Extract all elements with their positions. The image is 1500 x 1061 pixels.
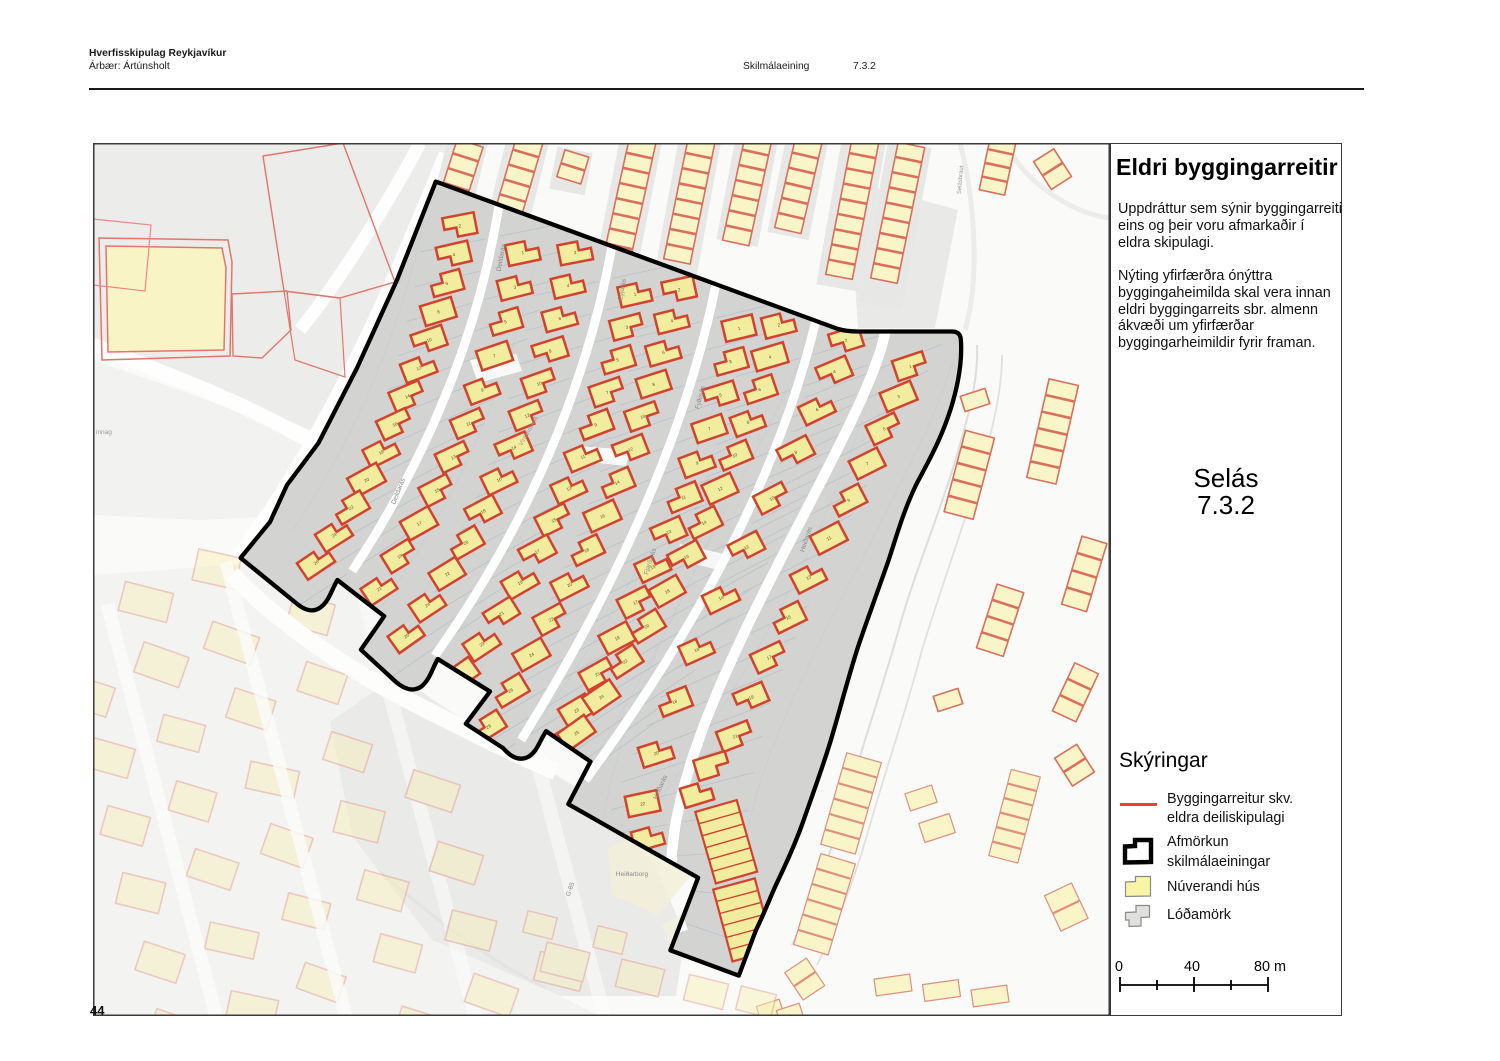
svg-text:Heiðarborg: Heiðarborg bbox=[616, 870, 649, 878]
svg-text:innag: innag bbox=[96, 429, 112, 436]
